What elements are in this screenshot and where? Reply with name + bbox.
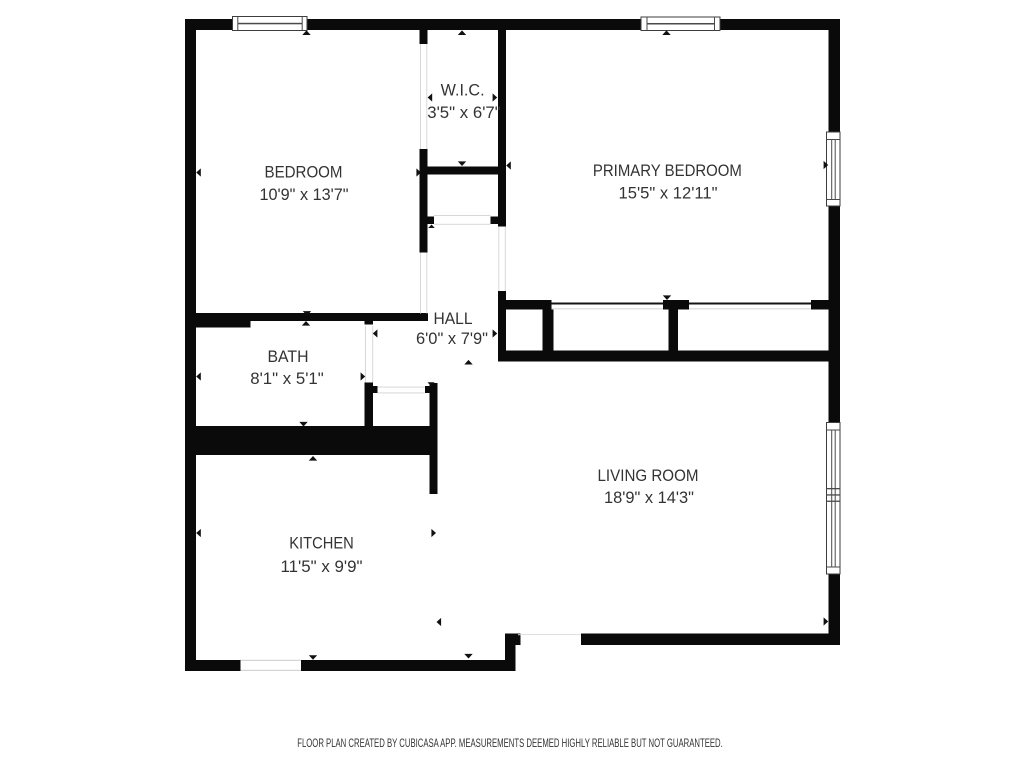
svg-text:BEDROOM: BEDROOM	[265, 163, 343, 182]
svg-text:FLOOR PLAN CREATED BY CUBICASA: FLOOR PLAN CREATED BY CUBICASA APP. MEAS…	[297, 736, 723, 750]
svg-text:BATH: BATH	[268, 347, 309, 366]
svg-text:KITCHEN: KITCHEN	[289, 534, 354, 553]
svg-text:15'5" x 12'11": 15'5" x 12'11"	[619, 184, 718, 203]
svg-text:W.I.C.: W.I.C.	[441, 80, 485, 99]
svg-text:LIVING ROOM: LIVING ROOM	[598, 466, 699, 485]
svg-text:10'9" x 13'7": 10'9" x 13'7"	[260, 185, 349, 204]
svg-text:6'0" x 7'9": 6'0" x 7'9"	[416, 329, 488, 348]
svg-text:3'5" x 6'7": 3'5" x 6'7"	[427, 103, 501, 122]
svg-text:HALL: HALL	[434, 309, 473, 328]
svg-text:11'5" x 9'9": 11'5" x 9'9"	[281, 557, 363, 576]
svg-text:18'9" x 14'3": 18'9" x 14'3"	[604, 488, 694, 507]
svg-text:PRIMARY BEDROOM: PRIMARY BEDROOM	[593, 161, 742, 180]
svg-text:8'1" x 5'1": 8'1" x 5'1"	[250, 369, 324, 388]
